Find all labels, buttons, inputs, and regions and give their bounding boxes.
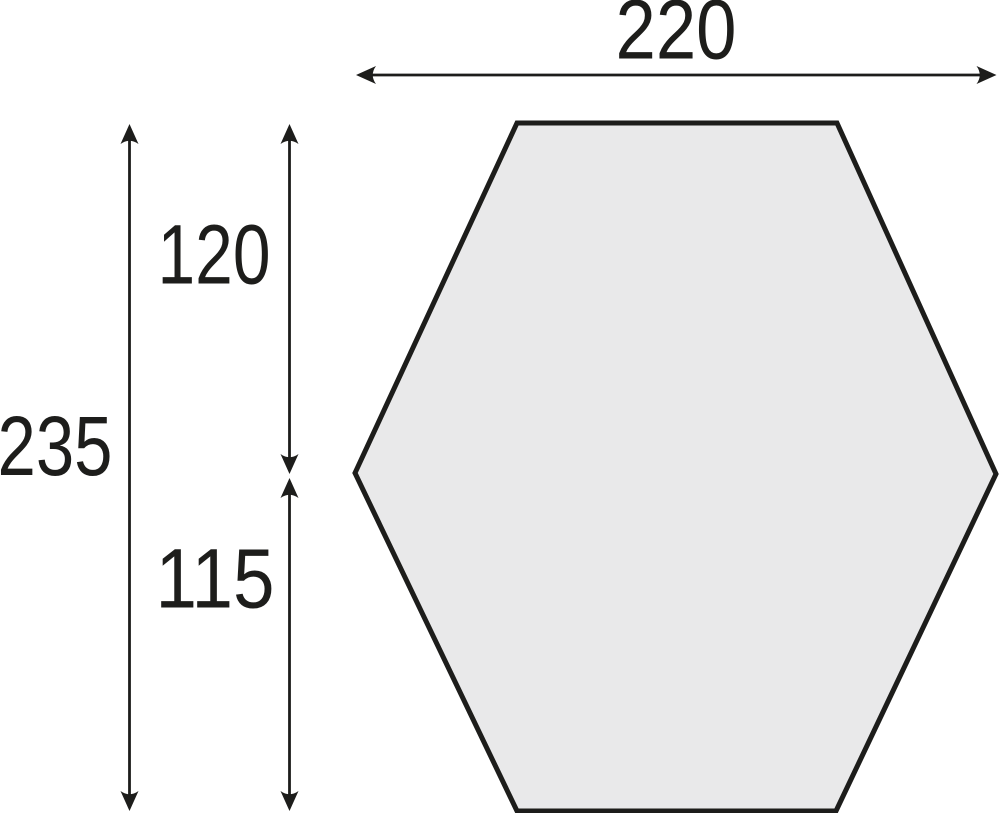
svg-text:235: 235 [0, 399, 113, 493]
svg-text:220: 220 [616, 0, 737, 77]
svg-text:120: 120 [158, 208, 271, 302]
svg-text:115: 115 [156, 532, 275, 626]
